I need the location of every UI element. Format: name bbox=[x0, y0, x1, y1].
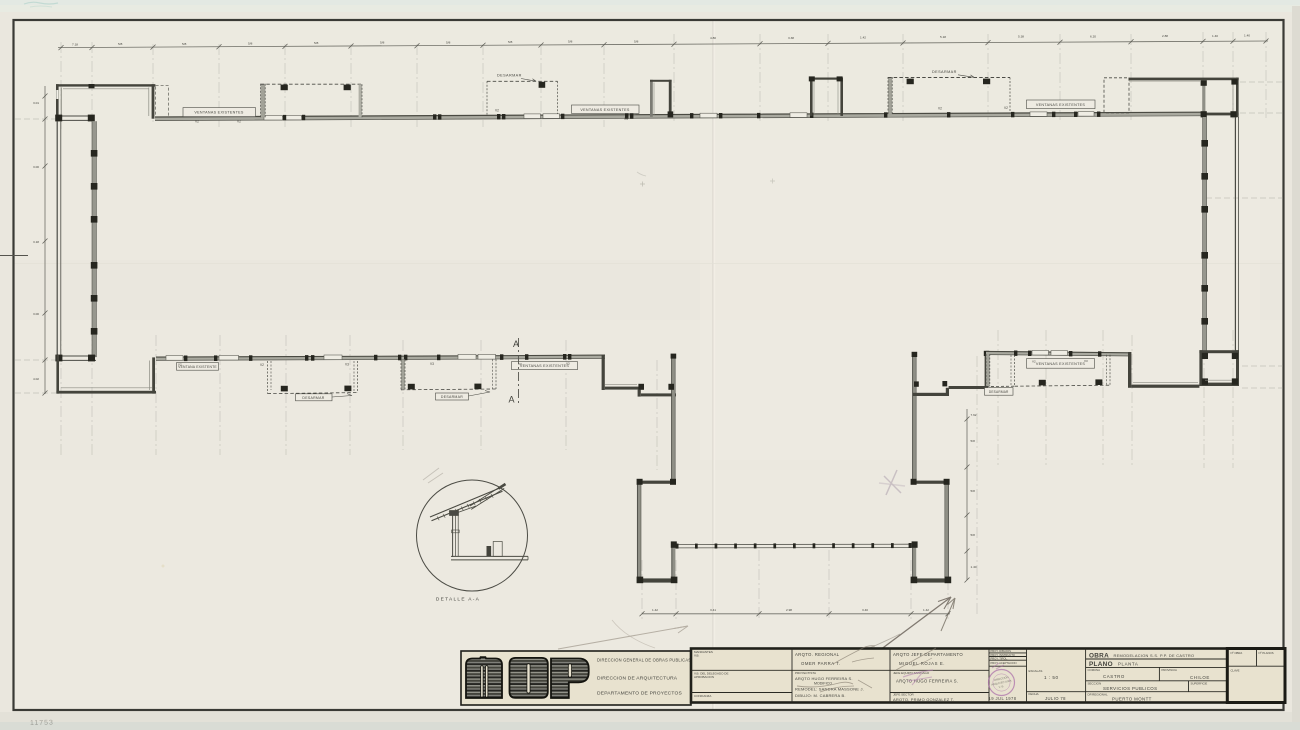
svg-text:5/8: 5/8 bbox=[380, 41, 385, 45]
svg-text:V2: V2 bbox=[938, 107, 942, 111]
svg-text:4.80: 4.80 bbox=[710, 36, 716, 40]
svg-text:V3: V3 bbox=[345, 363, 349, 367]
svg-text:V2: V2 bbox=[237, 119, 241, 123]
svg-text:5/8: 5/8 bbox=[508, 40, 513, 44]
svg-text:PROY. INSTRUCTO: PROY. INSTRUCTO bbox=[991, 653, 1015, 657]
svg-text:DESARMAR: DESARMAR bbox=[932, 70, 957, 74]
svg-text:SECCION: SECCION bbox=[1088, 682, 1102, 686]
svg-text:DESARMAR: DESARMAR bbox=[441, 395, 463, 399]
svg-text:5/8: 5/8 bbox=[634, 39, 639, 43]
svg-text:3.01: 3.01 bbox=[33, 101, 39, 105]
svg-text:PROY. TIPOL.: PROY. TIPOL. bbox=[991, 657, 1008, 661]
svg-text:A: A bbox=[508, 395, 514, 405]
svg-text:3.38: 3.38 bbox=[788, 36, 794, 40]
svg-text:ARQTO HUGO FERREIRA S.: ARQTO HUGO FERREIRA S. bbox=[795, 676, 853, 681]
svg-text:ESCALAS: ESCALAS bbox=[1029, 669, 1043, 673]
svg-text:1.42: 1.42 bbox=[860, 35, 866, 39]
svg-text:19 JUL 1978: 19 JUL 1978 bbox=[989, 696, 1017, 701]
svg-text:VENTANAS EXISTENTES: VENTANAS EXISTENTES bbox=[520, 364, 570, 368]
svg-text:VENTANAS EXISTENTES: VENTANAS EXISTENTES bbox=[1036, 103, 1086, 107]
svg-text:CHILOE: CHILOE bbox=[1190, 675, 1210, 680]
svg-text:7.62: 7.62 bbox=[971, 413, 977, 417]
svg-text:MIGUEL ROJAS E.: MIGUEL ROJAS E. bbox=[899, 661, 945, 666]
svg-text:3.00: 3.00 bbox=[33, 312, 39, 316]
svg-text:5/8: 5/8 bbox=[182, 42, 187, 46]
svg-text:3.18: 3.18 bbox=[33, 240, 39, 244]
svg-text:REMODELACION S.S. P.P. DE C: REMODELACION S.S. P.P. DE CASTRO bbox=[1114, 653, 1195, 658]
svg-text:2.88: 2.88 bbox=[1162, 34, 1168, 38]
svg-text:PLANO: PLANO bbox=[1089, 661, 1113, 668]
svg-text:FECHA: FECHA bbox=[1029, 692, 1039, 696]
svg-text:VENTANAS EXISTENTES: VENTANAS EXISTENTES bbox=[194, 111, 244, 115]
svg-text:Nº PLANOS: Nº PLANOS bbox=[1259, 651, 1274, 655]
svg-text:ARQTO HUGO FERREIRA S.: ARQTO HUGO FERREIRA S. bbox=[896, 679, 958, 684]
svg-text:1.40: 1.40 bbox=[1212, 34, 1218, 38]
svg-text:DP.REGIONAL: DP.REGIONAL bbox=[1088, 693, 1108, 697]
svg-text:1.42: 1.42 bbox=[652, 608, 658, 612]
svg-text:PLANTA: PLANTA bbox=[1118, 662, 1138, 667]
svg-text:3.40: 3.40 bbox=[862, 608, 868, 612]
svg-text:VENTANAS EXISTENTES: VENTANAS EXISTENTES bbox=[580, 108, 630, 112]
svg-text:PUERTO MONTT: PUERTO MONTT bbox=[1112, 696, 1152, 701]
svg-text:APROBACION: APROBACION bbox=[694, 675, 714, 679]
svg-text:5/8: 5/8 bbox=[971, 533, 976, 537]
svg-text:DIBUJO: M. CABRERA B.: DIBUJO: M. CABRERA B. bbox=[795, 693, 846, 698]
svg-text:5/8: 5/8 bbox=[248, 41, 253, 45]
svg-text:DETALLE A-A: DETALLE A-A bbox=[436, 597, 480, 603]
svg-text:V2: V2 bbox=[1004, 106, 1008, 110]
svg-text:OBRA: OBRA bbox=[1089, 653, 1109, 660]
svg-text:2.98: 2.98 bbox=[786, 608, 792, 612]
svg-text:1.42: 1.42 bbox=[923, 608, 929, 612]
svg-text:DESARMAR: DESARMAR bbox=[989, 390, 1009, 394]
svg-text:PROY. DIBUJOS: PROY. DIBUJOS bbox=[991, 649, 1012, 653]
svg-text:6.20: 6.20 bbox=[1090, 34, 1096, 38]
svg-text:V2: V2 bbox=[260, 363, 264, 367]
svg-text:5.18: 5.18 bbox=[940, 35, 946, 39]
svg-text:PROYECTISTA: PROYECTISTA bbox=[795, 671, 816, 675]
svg-text:3.41: 3.41 bbox=[710, 608, 716, 612]
svg-text:5.38: 5.38 bbox=[1018, 35, 1024, 39]
svg-text:DESARMAR: DESARMAR bbox=[302, 396, 324, 400]
svg-text:5/8: 5/8 bbox=[568, 40, 573, 44]
svg-text:DEPARTAMENTO DE PROYECTOS: DEPARTAMENTO DE PROYECTOS bbox=[597, 691, 683, 697]
svg-text:5/8: 5/8 bbox=[971, 489, 976, 493]
svg-text:1.40: 1.40 bbox=[1244, 34, 1250, 38]
svg-text:DIRECCION GENERAL DE OBRAS PUB: DIRECCION GENERAL DE OBRAS PUBLICAS bbox=[597, 658, 691, 663]
svg-text:5/8: 5/8 bbox=[971, 439, 976, 443]
svg-text:V2: V2 bbox=[178, 362, 182, 366]
svg-text:CLAVE: CLAVE bbox=[1231, 669, 1240, 673]
svg-text:CONFIANZA: CONFIANZA bbox=[694, 694, 711, 698]
svg-text:DIRECCION DE ARQUITECTURA: DIRECCION DE ARQUITECTURA bbox=[597, 676, 678, 682]
svg-text:4.02: 4.02 bbox=[33, 377, 39, 381]
svg-text:SERVICIOS PUBLICOS: SERVICIOS PUBLICOS bbox=[1103, 686, 1157, 691]
svg-text:A: A bbox=[513, 339, 519, 349]
svg-text:1 : 50: 1 : 50 bbox=[1044, 675, 1059, 680]
svg-text:V2: V2 bbox=[1032, 359, 1036, 363]
svg-text:V3: V3 bbox=[566, 362, 570, 366]
svg-text:11753: 11753 bbox=[30, 720, 54, 727]
svg-text:7.18: 7.18 bbox=[72, 43, 78, 47]
svg-text:VENTANA EXISTENTE: VENTANA EXISTENTE bbox=[178, 365, 217, 369]
svg-text:V3: V3 bbox=[430, 362, 434, 366]
svg-text:5/8: 5/8 bbox=[118, 42, 123, 46]
svg-text:5/8: 5/8 bbox=[446, 40, 451, 44]
svg-text:ARQTO, PRIMO GONZALEZ T.: ARQTO, PRIMO GONZALEZ T. bbox=[893, 697, 954, 702]
svg-text:V3: V3 bbox=[1084, 359, 1088, 363]
svg-text:PROVINCIA: PROVINCIA bbox=[1162, 668, 1178, 672]
svg-text:COMUNA: COMUNA bbox=[1088, 668, 1101, 672]
svg-text:JULIO 78: JULIO 78 bbox=[1045, 696, 1066, 701]
svg-text:3.00: 3.00 bbox=[33, 165, 39, 169]
svg-text:5/8: 5/8 bbox=[314, 41, 319, 45]
svg-text:V.B.: V.B. bbox=[694, 654, 700, 658]
svg-text:V3: V3 bbox=[624, 117, 628, 121]
svg-text:SUPERFICIE: SUPERFICIE bbox=[1191, 682, 1208, 686]
svg-text:Nº OBRA: Nº OBRA bbox=[1231, 651, 1243, 655]
svg-text:PROY. ACEPTACION: PROY. ACEPTACION bbox=[991, 661, 1017, 665]
svg-text:DESARMAR: DESARMAR bbox=[497, 74, 522, 78]
svg-text:V2: V2 bbox=[495, 109, 499, 113]
svg-text:CASTRO: CASTRO bbox=[1103, 674, 1125, 679]
svg-text:ARQTO. REGIONAL: ARQTO. REGIONAL bbox=[795, 652, 840, 657]
svg-text:V2: V2 bbox=[195, 120, 199, 124]
svg-text:1.40: 1.40 bbox=[971, 565, 977, 569]
svg-text:VENTANAS EXISTENTES: VENTANAS EXISTENTES bbox=[1036, 362, 1086, 366]
